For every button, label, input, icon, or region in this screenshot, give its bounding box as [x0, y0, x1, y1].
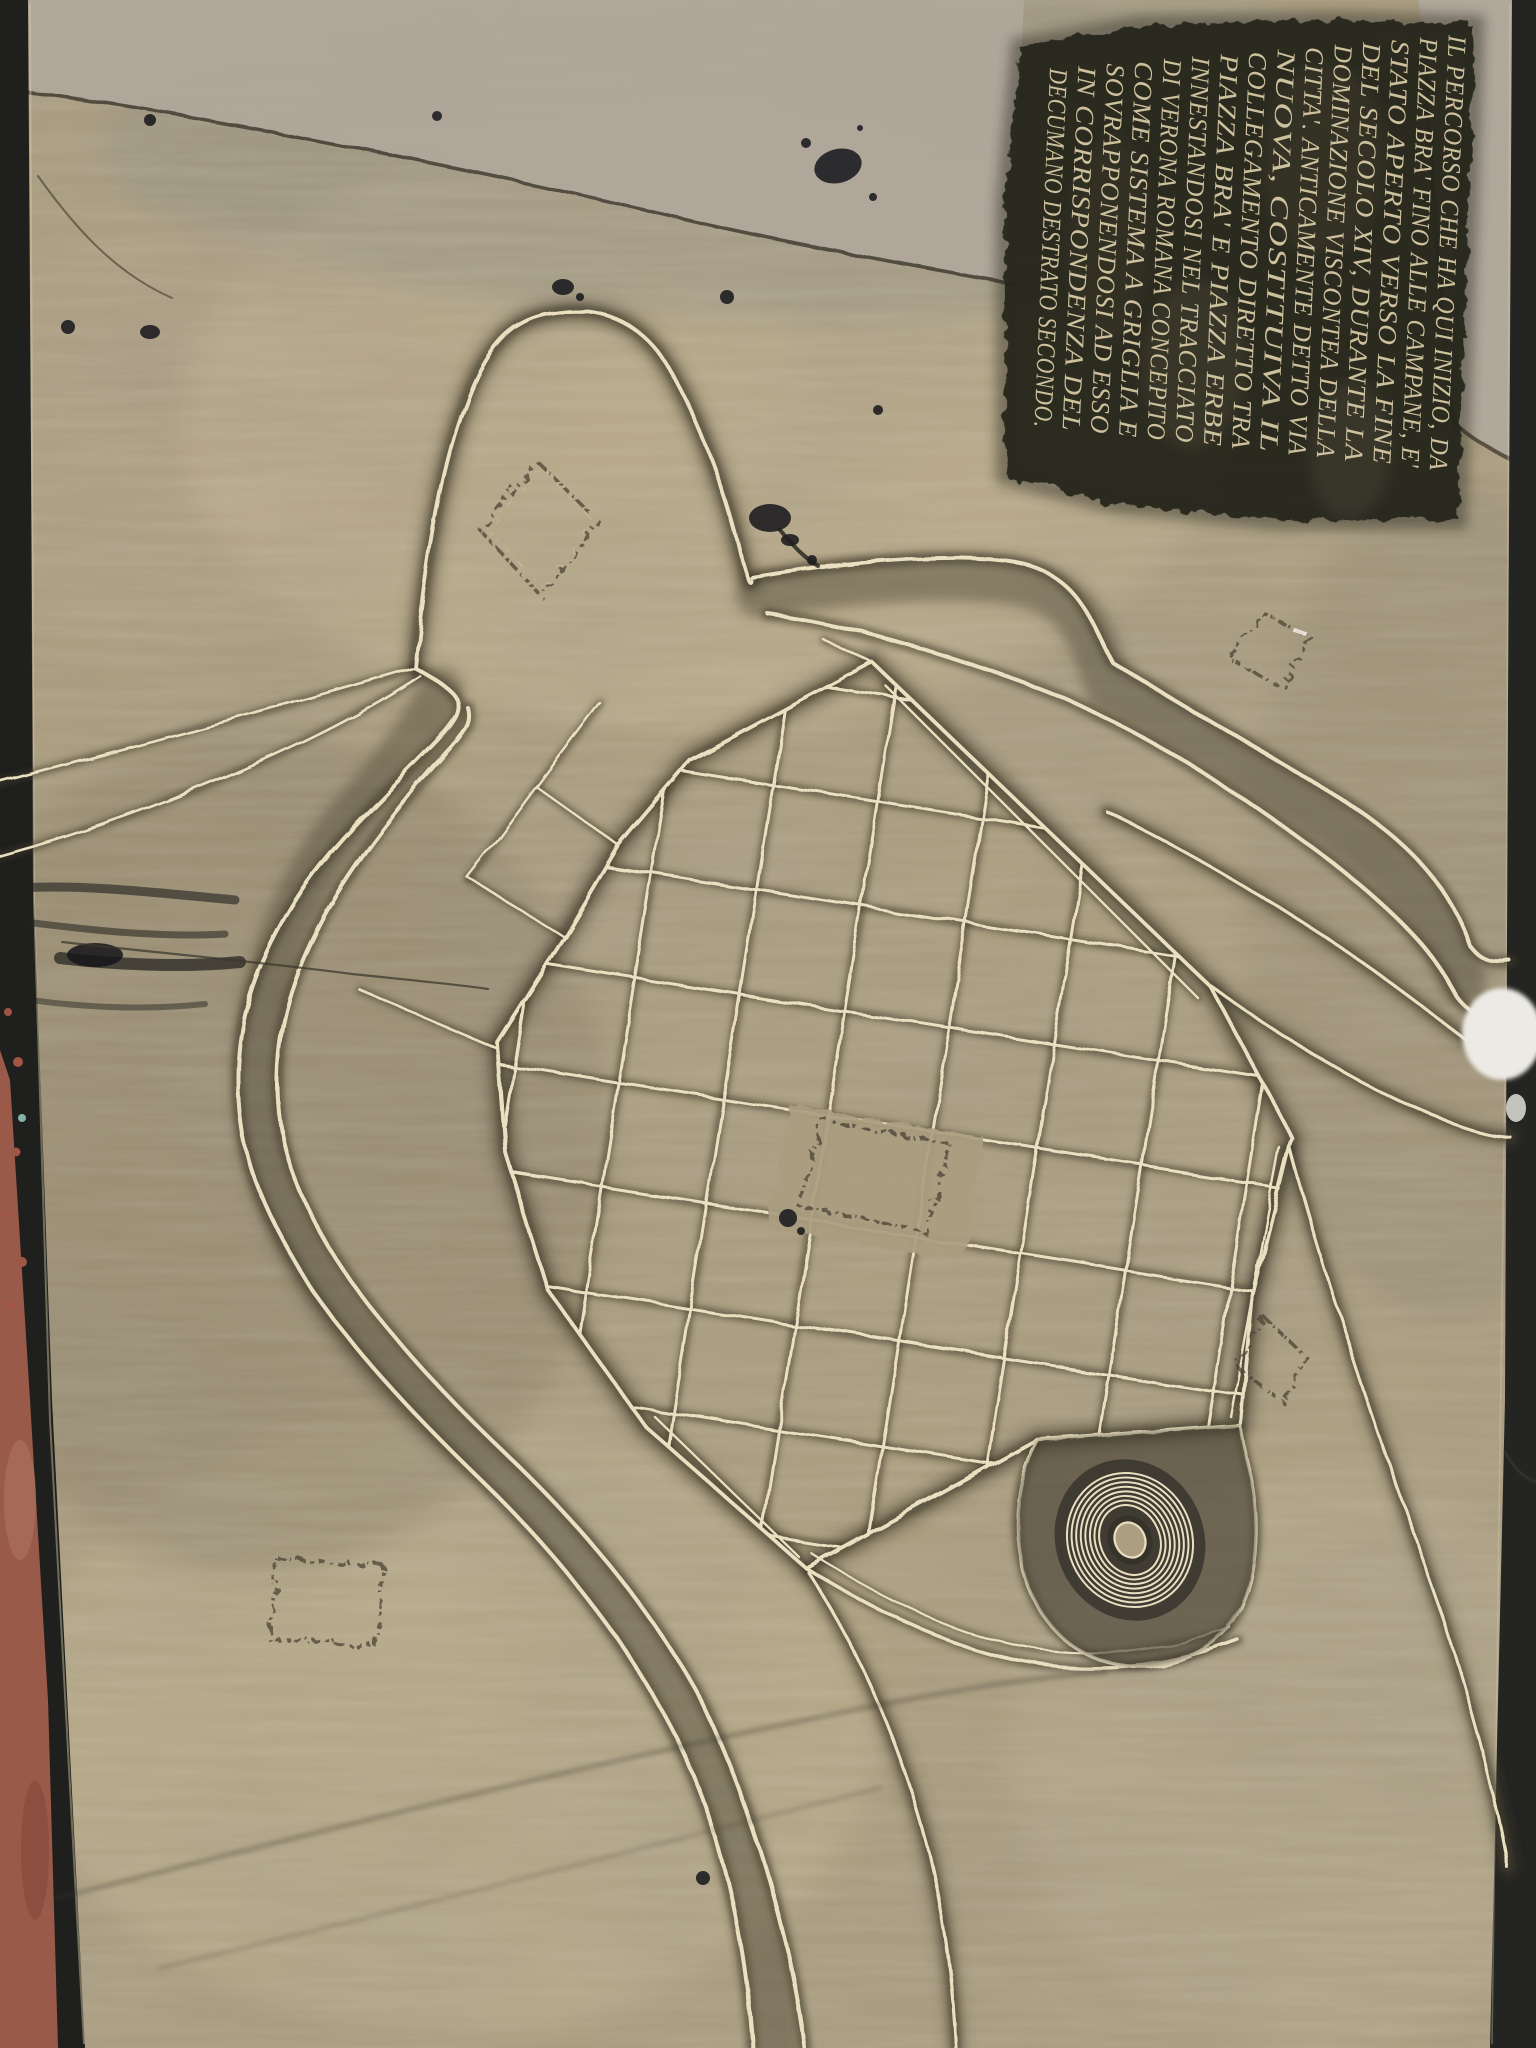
verona-map-plaque: Bronze pavement map plaque of Roman Vero… — [0, 0, 1536, 2048]
dirt-speckle — [0, 0, 1536, 2048]
plaque-photo: Bronze pavement map plaque of Roman Vero… — [0, 0, 1536, 2048]
